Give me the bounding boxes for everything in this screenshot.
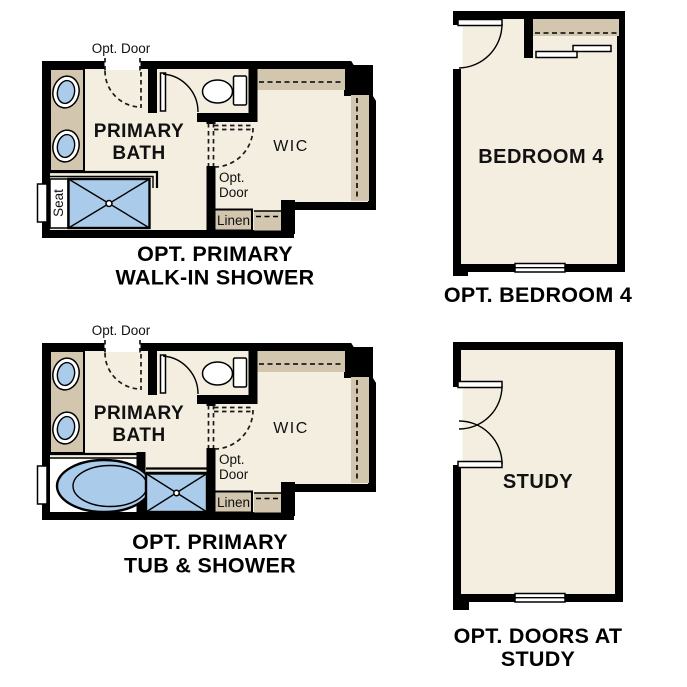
caption-bedroom4: OPT. BEDROOM 4 [444,283,632,307]
room-label-line2: BATH [112,425,165,446]
opt-door-mid-label-line1: Opt. [219,170,245,185]
closet-bypass-door-right [573,46,611,52]
room-label: STUDY [503,471,573,493]
room-label: BEDROOM 4 [478,146,604,168]
opt-door-mid-label-line2: Door [219,467,249,482]
bedroom4-door-opening [452,25,463,69]
plan-study: STUDY OPT. DOORS AT STUDY [452,346,623,671]
caption-study-line2: STUDY [501,647,575,671]
opt-door-top-label: Opt. Door [92,323,151,338]
opt-door-mid-label-line2: Door [219,185,249,200]
linen-label: Linen [217,213,250,228]
caption-tub-shower-line1: OPT. PRIMARY [132,530,288,554]
room-label-line2: BATH [112,143,165,164]
floorplan-canvas: Opt. Door PRIMARY BATH WIC Opt. Door Lin… [0,0,687,687]
caption-walk-in-shower-line1: OPT. PRIMARY [137,242,293,266]
study-door-leaf-bottom [458,462,502,468]
study-door-opening [452,387,463,465]
caption-study-line1: OPT. DOORS AT [454,624,623,648]
tub-basin [73,466,147,507]
seat-label: Seat [51,189,66,217]
plan-bedroom4: BEDROOM 4 OPT. BEDROOM 4 [444,15,632,307]
study-corner-step [453,598,469,610]
shower-drain [174,490,179,495]
floorplan-options-sheet: Opt. Door PRIMARY BATH WIC Opt. Door Lin… [0,0,687,687]
bedroom4-corner-step [453,264,468,276]
room-label-line1: PRIMARY [94,403,184,424]
closet-bypass-door-left [536,52,577,58]
plan-tub-shower: Opt. Door PRIMARY BATH WIC Opt. Door Lin… [38,323,374,578]
opt-door-top-label: Opt. Door [92,41,151,56]
caption-walk-in-shower-line2: WALK-IN SHOWER [116,266,315,290]
caption-tub-shower-line2: TUB & SHOWER [124,554,296,578]
study-door-leaf-top [458,382,502,388]
plan-walk-in-shower: Opt. Door PRIMARY BATH WIC Opt. Door Lin… [38,41,374,290]
linen-label: Linen [217,495,250,510]
wic-label: WIC [273,420,309,437]
opt-door-mid-label-line1: Opt. [219,452,245,467]
shower-drain [106,201,112,207]
room-label-line1: PRIMARY [94,121,184,142]
bedroom4-door-leaf [458,20,502,26]
wic-label: WIC [273,138,309,155]
